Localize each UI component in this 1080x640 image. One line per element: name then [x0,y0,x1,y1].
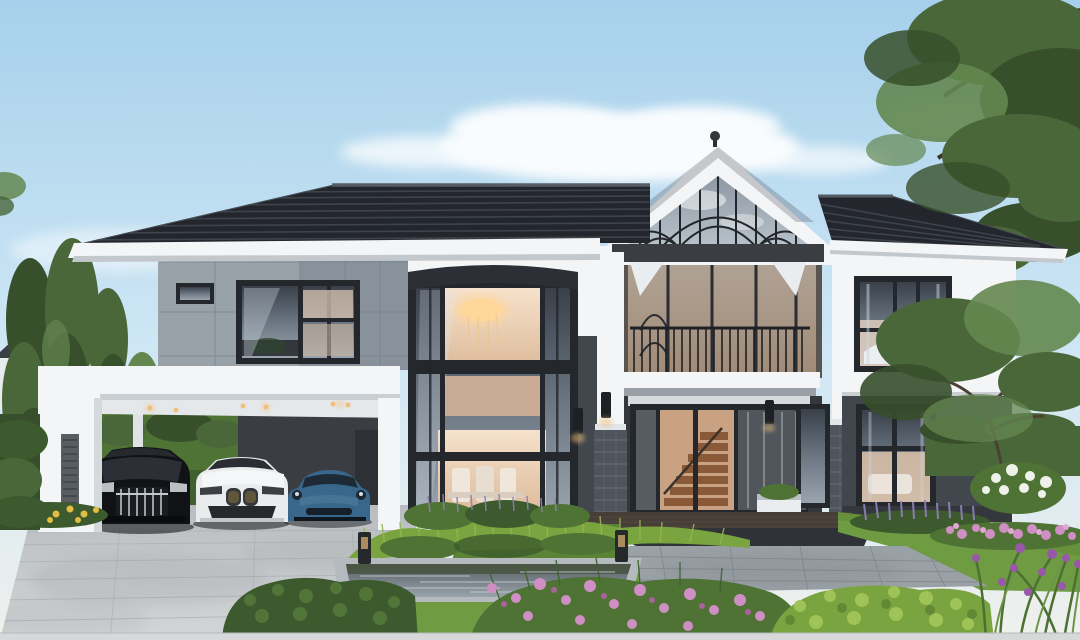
living-room-windows [796,404,936,508]
small-window [176,283,214,304]
rendered-photo [0,0,1080,640]
left-bedroom-window [236,280,360,364]
sofa-silhouette [868,474,912,494]
bay-window [408,265,578,522]
gable-beam [612,244,824,262]
gable-finial [710,131,720,141]
entry-doors-staircase-view [660,408,734,512]
left-wing-upper [158,246,412,370]
white-flower-bush [970,462,1066,514]
balcony-slab [616,372,820,388]
dining-set [448,466,524,502]
house-exterior-scene [0,0,1080,640]
bottom-pavement-strip [0,633,1080,640]
